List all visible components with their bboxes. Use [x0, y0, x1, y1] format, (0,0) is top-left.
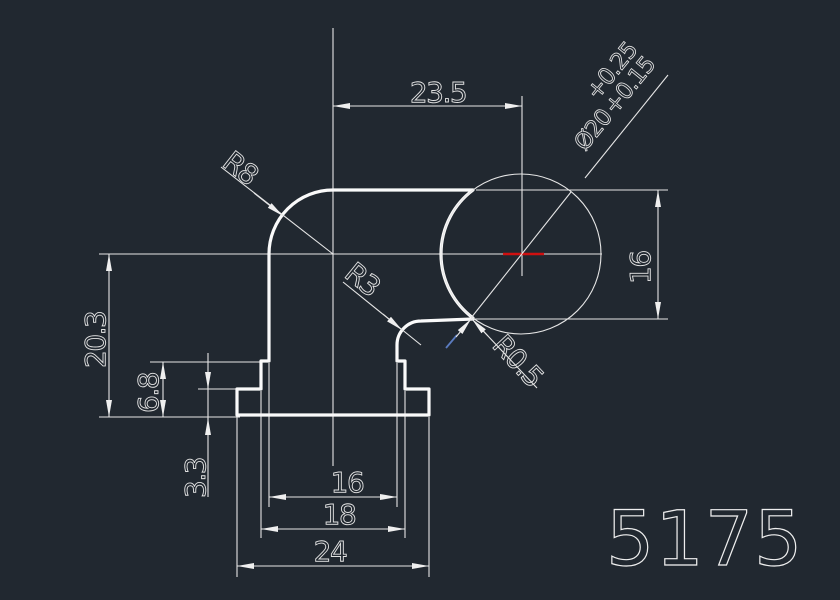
extension-lines[interactable]	[99, 190, 668, 577]
dim-text-6-8: 6.8	[132, 373, 165, 413]
dim-flange-width[interactable]: 24	[237, 535, 429, 568]
leader-arrow	[254, 193, 283, 216]
radius-callout-r8[interactable]: R8	[217, 145, 333, 254]
dim-bore-height[interactable]: 16	[624, 190, 658, 319]
dim-step-height[interactable]: 6.8	[132, 362, 165, 417]
radius-text-r0-5: R0.5	[486, 328, 550, 393]
snap-hint-mark	[446, 335, 457, 348]
dim-step-width[interactable]: 18	[261, 498, 405, 531]
part-number-text: 5175	[606, 494, 803, 583]
cad-model-space[interactable]: 23.5 16 20.3 6.8 3.3 16 18 24 R8	[0, 0, 840, 600]
dim-text-24: 24	[314, 535, 347, 568]
radius-callout-r3[interactable]: R3	[339, 256, 421, 345]
cad-canvas[interactable]: 23.5 16 20.3 6.8 3.3 16 18 24 R8	[0, 0, 840, 600]
radius-callout-r0-5[interactable]: R0.5	[471, 318, 550, 393]
part-profile-outline	[237, 190, 473, 415]
dim-stem-width[interactable]: 16	[269, 466, 397, 499]
dim-text-23-5: 23.5	[410, 76, 466, 109]
part-profile[interactable]	[237, 174, 601, 415]
leader-arrow	[472, 319, 488, 336]
radius-text-r3: R3	[339, 256, 386, 303]
diameter-arrow	[456, 319, 471, 337]
radius-text-r8: R8	[217, 145, 264, 192]
dim-text-20-3: 20.3	[79, 312, 112, 368]
dim-text-3-3: 3.3	[179, 458, 212, 498]
leader-arrow	[383, 314, 402, 330]
dim-overall-height[interactable]: 20.3	[79, 254, 112, 417]
bore-diameter-callout[interactable]: Ø20 +0.25 +0.15	[456, 38, 668, 337]
dim-flange-height[interactable]: 3.3	[179, 353, 212, 498]
bore-label: Ø20 +0.25 +0.15	[552, 38, 661, 156]
centerlines[interactable]	[99, 28, 602, 466]
dim-text-18: 18	[323, 498, 356, 531]
dim-top-offset[interactable]: 23.5	[333, 76, 522, 109]
diameter-line	[471, 192, 571, 318]
dim-text-16-right: 16	[624, 251, 657, 284]
dim-text-16-bottom: 16	[331, 466, 364, 499]
